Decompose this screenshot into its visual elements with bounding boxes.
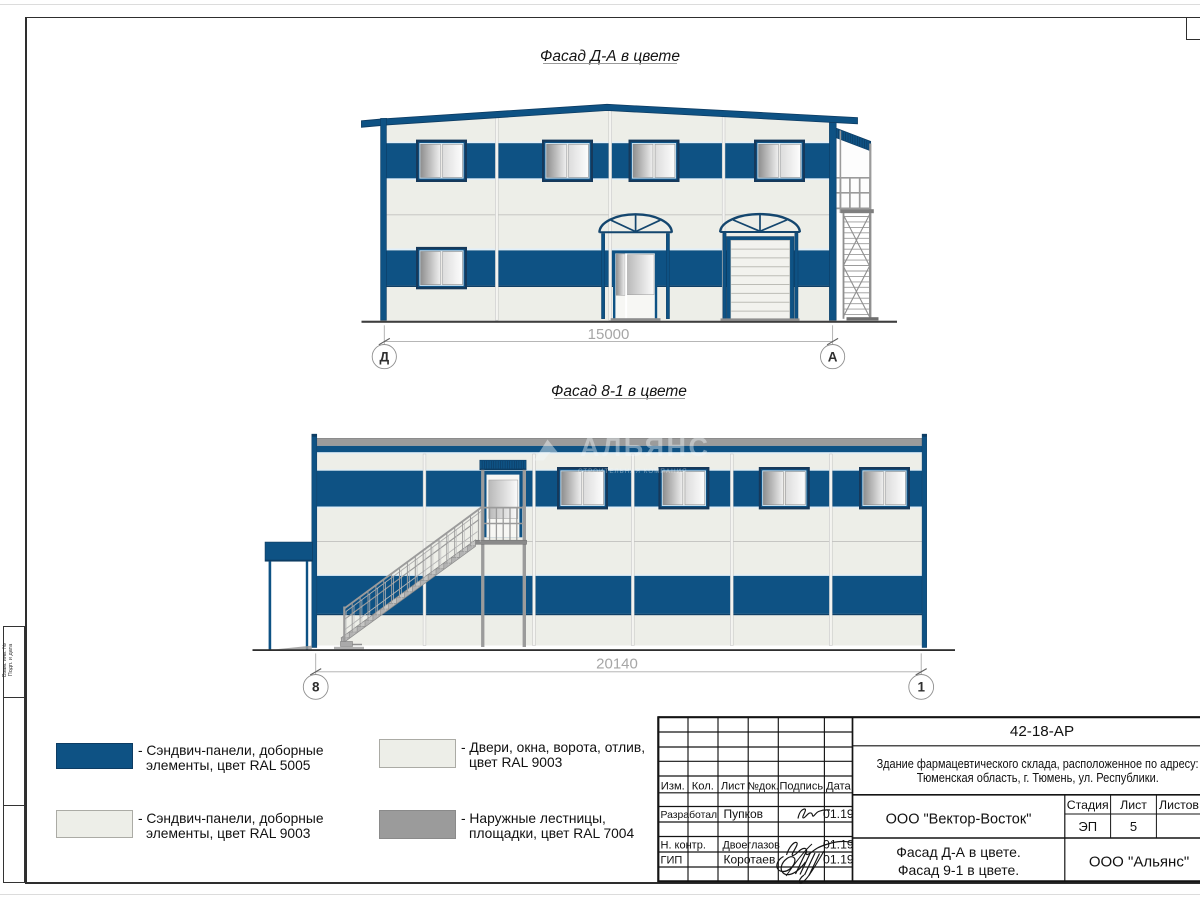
svg-text:Двоеглазов: Двоеглазов — [723, 839, 781, 851]
svg-text:Коротаев: Коротаев — [724, 852, 776, 866]
svg-text:1: 1 — [917, 680, 925, 695]
svg-text:Разработал: Разработал — [661, 809, 718, 821]
svg-text:15000: 15000 — [588, 326, 630, 343]
svg-text:Подпись: Подпись — [780, 781, 824, 793]
svg-text:Изм.: Изм. — [661, 781, 685, 793]
svg-text:01.19: 01.19 — [823, 852, 854, 866]
svg-text:20140: 20140 — [596, 656, 638, 673]
svg-text:ООО "Альянс": ООО "Альянс" — [1089, 854, 1189, 871]
svg-text:42-18-АР: 42-18-АР — [1010, 723, 1074, 740]
svg-text:Пупков: Пупков — [724, 807, 764, 821]
svg-text:Д: Д — [379, 349, 389, 364]
svg-text:ЭП: ЭП — [1078, 819, 1097, 834]
svg-text:8: 8 — [312, 680, 320, 695]
svg-text:Кол.: Кол. — [692, 781, 714, 793]
svg-text:Здание фармацевтического склад: Здание фармацевтического склада, располо… — [877, 756, 1199, 771]
svg-text:Фасад Д-А в цвете.: Фасад Д-А в цвете. — [896, 844, 1021, 860]
svg-text:Тюменская область, г. Тюмень,: Тюменская область, г. Тюмень, ул. Респуб… — [917, 770, 1159, 785]
svg-text:Лист: Лист — [721, 781, 745, 793]
svg-text:№док.: №док. — [748, 781, 779, 793]
svg-text:ГИП: ГИП — [661, 854, 683, 866]
svg-text:ООО "Вектор-Восток": ООО "Вектор-Восток" — [886, 812, 1032, 828]
svg-text:Фасад 9-1 в цвете.: Фасад 9-1 в цвете. — [898, 862, 1019, 878]
svg-text:01.19: 01.19 — [823, 807, 854, 821]
svg-text:Листов: Листов — [1159, 798, 1199, 812]
svg-text:Стадия: Стадия — [1067, 798, 1109, 812]
svg-text:А: А — [828, 349, 838, 364]
svg-text:5: 5 — [1130, 819, 1137, 834]
svg-text:Лист: Лист — [1120, 798, 1147, 812]
svg-text:Н. контр.: Н. контр. — [661, 839, 706, 851]
svg-text:Дата: Дата — [826, 781, 852, 793]
